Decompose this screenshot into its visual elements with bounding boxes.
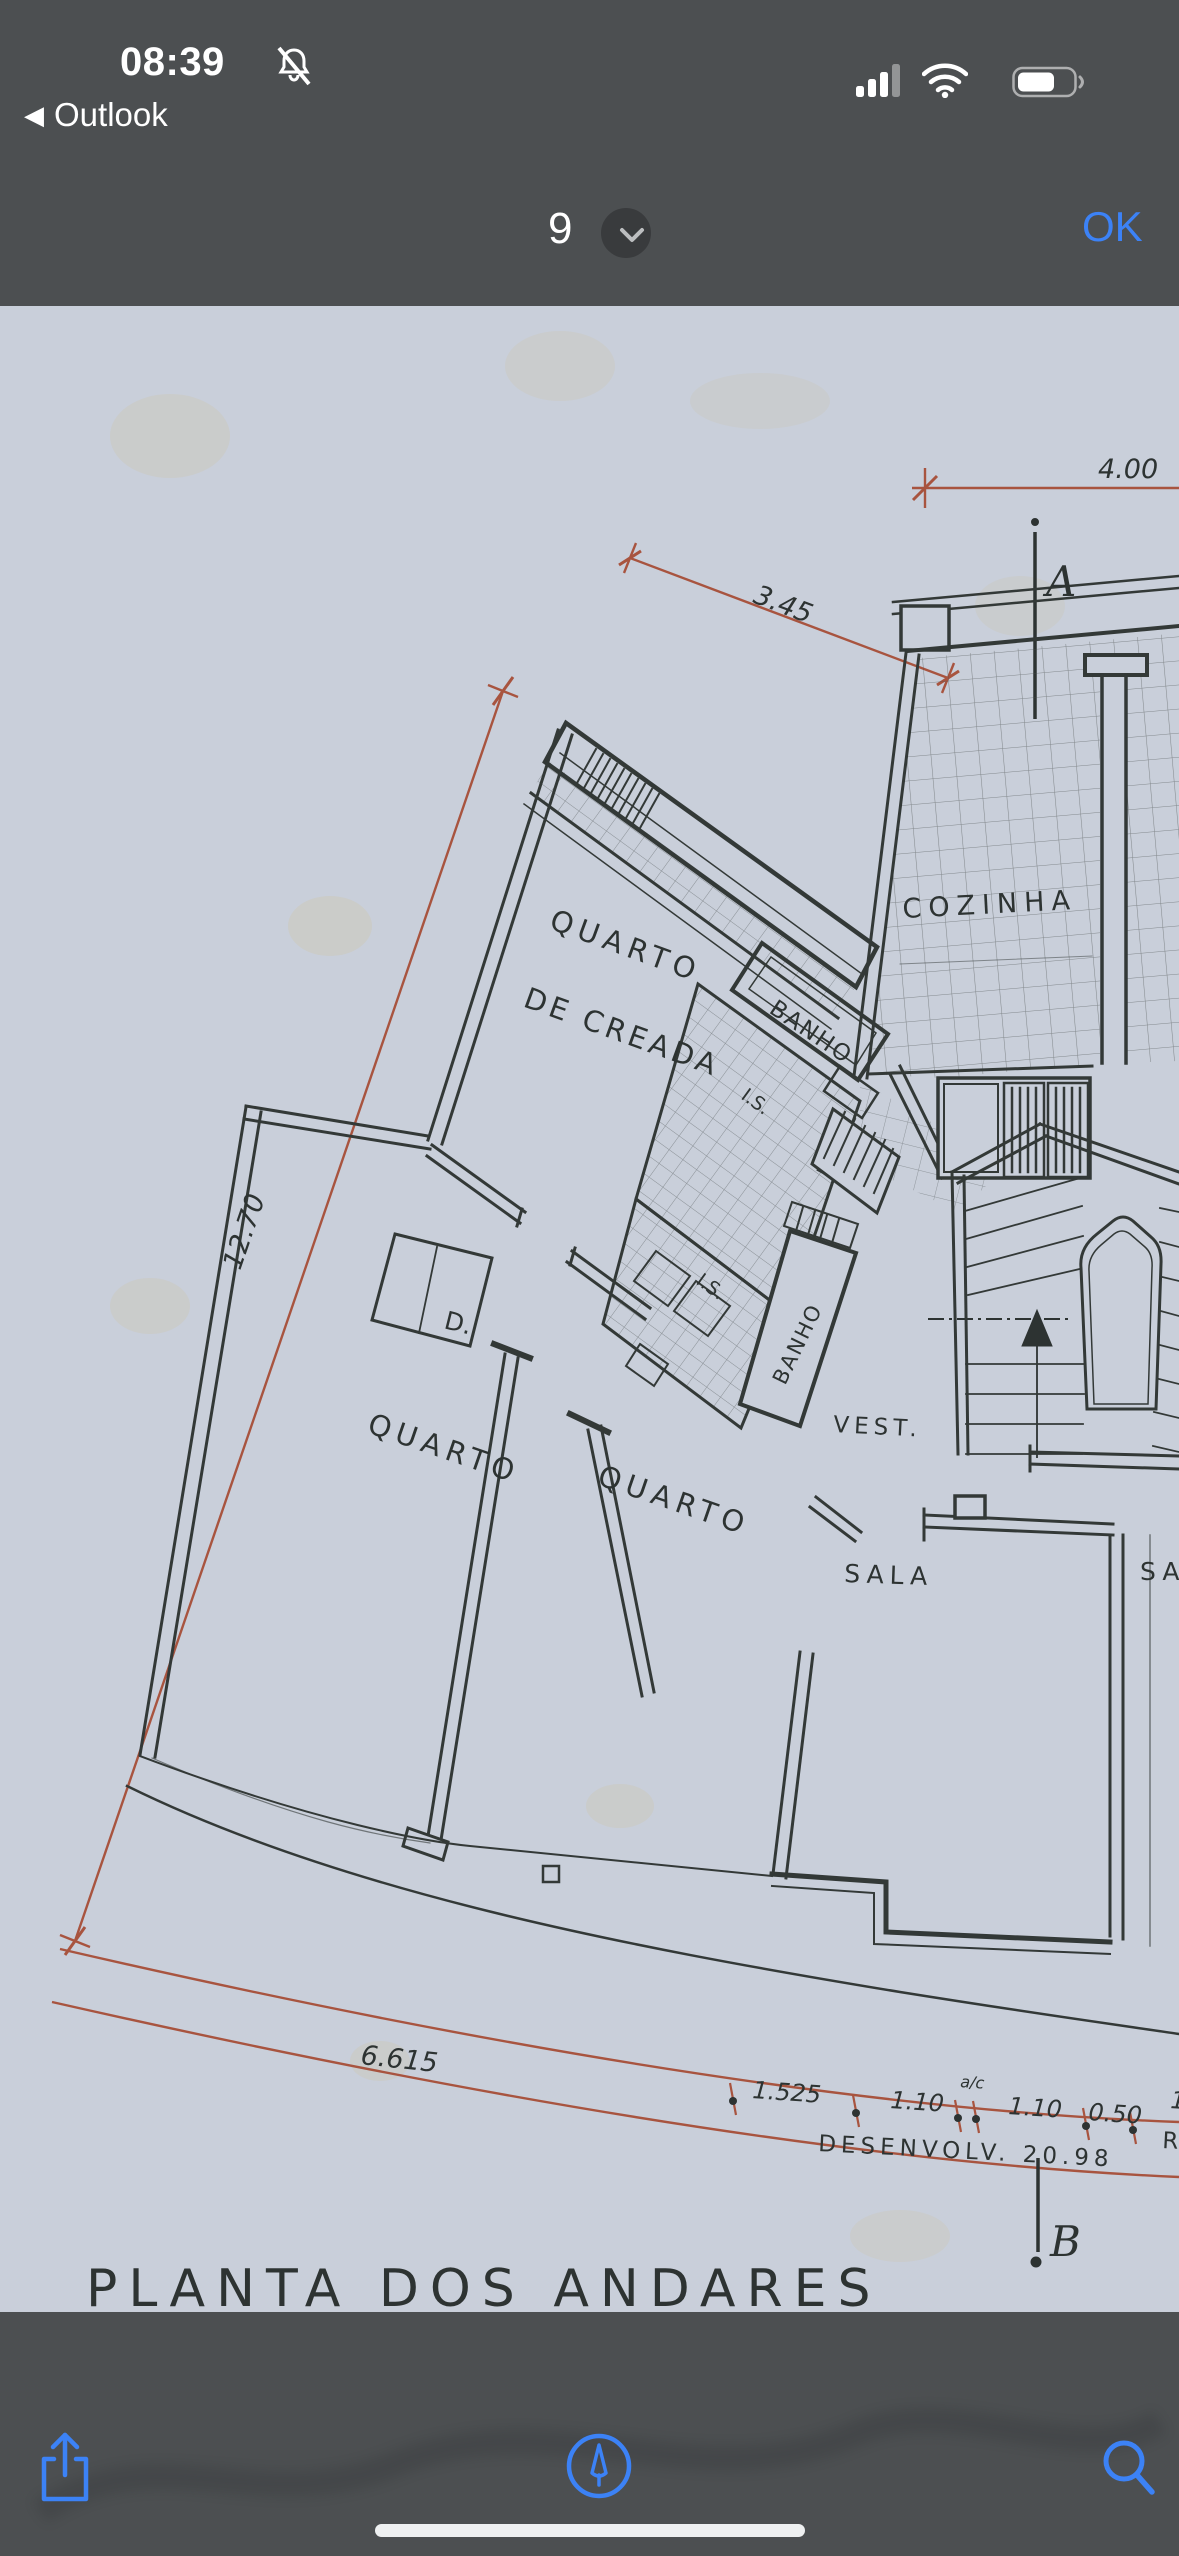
cellular-signal-icon [856,62,906,98]
dim-development: DESENVOLV. 20.98 [818,2131,1115,2172]
dim-1-10-b: 1.10 [1008,2092,1063,2124]
markup-button[interactable] [558,2430,640,2505]
document-canvas[interactable]: QUARTO DE CREADA BANHO I.S. I.S. BANHO C… [0,306,1179,2312]
dim-edge-frag: 1 [1170,2086,1179,2115]
label-living-partial: SA [1140,1557,1179,1586]
magnifier-icon [1096,2435,1162,2501]
battery-icon [1012,64,1086,100]
share-icon [34,2431,96,2505]
label-maid-room-1: QUARTO [546,903,707,989]
back-chevron-icon: ◀ [24,102,44,128]
label-bedroom-mid: QUARTO [594,1458,755,1542]
status-icons [856,62,968,98]
dim-ac: a/c [960,2072,985,2093]
dim-3-45: 3.45 [749,580,816,630]
label-vestibule: VEST. [833,1412,923,1443]
dim-1-10-a: 1.10 [890,2086,945,2118]
dim-0-50: 0.50 [1088,2098,1143,2130]
bottom-toolbar [0,2312,1179,2556]
section-letter-A: A [1042,557,1076,606]
wifi-icon [922,62,968,98]
label-living: SALA [844,1559,934,1591]
share-button[interactable] [28,2430,102,2509]
label-closet: D. [442,1306,475,1341]
page-number: 9 [548,204,572,254]
iphone-screen: QUARTO DE CREADA BANHO I.S. I.S. BANHO C… [0,0,1179,2556]
clock: 08:39 [120,40,225,85]
section-marker-B [1031,2158,1041,2267]
dim-4-00: 4.00 [1098,454,1158,485]
plan-title: PLANTA DOS ANDARES [86,2259,882,2312]
bell-slash-icon [272,44,316,88]
back-label: Outlook [54,96,168,134]
dim-1-525: 1.525 [752,2076,823,2109]
dim-development-frag: R [1162,2128,1179,2155]
markup-pen-icon [564,2431,634,2501]
stair-direction-arrow [928,1310,1070,1458]
search-button[interactable] [1090,2434,1168,2505]
pager-row: 9 OK [0,196,1179,276]
label-bedroom-left: QUARTO [364,1406,525,1490]
back-to-outlook-button[interactable]: ◀ Outlook [24,96,168,134]
chevron-down-icon [607,209,657,259]
home-indicator[interactable] [375,2524,805,2537]
status-and-nav-bar: 08:39 ◀ Outlook [0,0,1179,306]
ok-button[interactable]: OK [1076,202,1149,252]
floor-plan-drawing: QUARTO DE CREADA BANHO I.S. I.S. BANHO C… [0,306,1179,2312]
section-letter-B: B [1049,2217,1081,2266]
page-selector-button[interactable] [601,208,651,258]
